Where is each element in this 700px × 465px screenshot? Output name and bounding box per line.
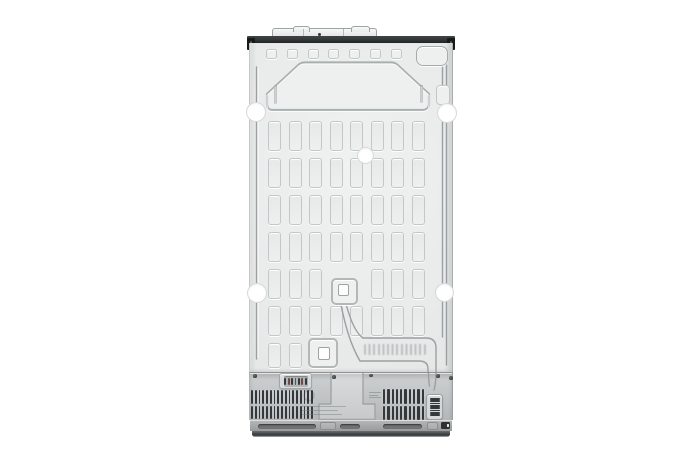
vent-slat bbox=[413, 389, 415, 404]
base-tab bbox=[427, 422, 438, 430]
top-emboss-square bbox=[308, 49, 319, 59]
plate-slat bbox=[284, 378, 286, 385]
label-line bbox=[302, 410, 338, 411]
vent-slat bbox=[274, 390, 276, 404]
refrigerator-back-view bbox=[247, 27, 455, 438]
cabinet-top-edge bbox=[247, 36, 455, 43]
vent-slat bbox=[413, 406, 415, 421]
screw-icon bbox=[332, 375, 336, 379]
label-line bbox=[369, 392, 381, 393]
hinge-bump-left bbox=[293, 26, 310, 32]
machine-compartment-cover bbox=[249, 372, 453, 420]
square-cutout bbox=[318, 347, 330, 360]
grille-slat bbox=[430, 400, 440, 402]
molded-label-small-illegible bbox=[369, 392, 381, 398]
drain-grille bbox=[426, 394, 443, 420]
emboss-square-lower bbox=[308, 338, 338, 368]
vent-slat bbox=[296, 390, 298, 404]
vent-slat bbox=[274, 406, 276, 420]
vent-slat bbox=[307, 390, 309, 404]
emboss-square-upper bbox=[331, 278, 358, 305]
grille-slat bbox=[430, 403, 440, 405]
vent-slat bbox=[251, 406, 253, 420]
grille-slat bbox=[430, 398, 440, 400]
molded-label-text-illegible bbox=[302, 406, 346, 415]
product-photo-canvas bbox=[0, 0, 700, 465]
top-emboss-square bbox=[349, 49, 360, 59]
label-line bbox=[369, 395, 378, 396]
vent-slat bbox=[400, 406, 402, 421]
vent-slat bbox=[304, 390, 306, 404]
top-emboss-square bbox=[328, 49, 339, 59]
vent-slat bbox=[383, 406, 385, 421]
side-emboss-square bbox=[436, 85, 450, 105]
vent-slat-row bbox=[383, 389, 424, 404]
vent-slat-row bbox=[251, 390, 313, 404]
vent-slat bbox=[409, 406, 411, 421]
tube-channel-bottom bbox=[360, 361, 428, 372]
vent-slat bbox=[255, 390, 257, 404]
vent-slat bbox=[270, 390, 272, 404]
base-slot bbox=[340, 424, 360, 429]
plate-slat bbox=[288, 378, 290, 385]
vent-slat bbox=[262, 406, 264, 420]
vent-slat bbox=[262, 390, 264, 404]
vent-slat bbox=[285, 406, 287, 420]
top-emboss-square bbox=[391, 49, 402, 59]
vent-slat bbox=[300, 390, 302, 404]
drain-grille-slats bbox=[430, 398, 440, 416]
vent-slat bbox=[387, 406, 389, 421]
screw-icon bbox=[436, 374, 440, 378]
grille-slat bbox=[430, 412, 440, 414]
grille-slat bbox=[430, 414, 440, 416]
label-line bbox=[302, 414, 342, 415]
vent-slat bbox=[255, 406, 257, 420]
top-emboss-row bbox=[266, 49, 402, 59]
vent-slat bbox=[417, 406, 419, 421]
top-emboss-square bbox=[287, 49, 298, 59]
plate-slat bbox=[298, 378, 300, 385]
vent-slat bbox=[259, 390, 261, 404]
vent-slat bbox=[409, 389, 411, 404]
vent-slat bbox=[392, 406, 394, 421]
base-tab bbox=[320, 422, 336, 430]
vent-slat bbox=[417, 389, 419, 404]
power-cord-connector bbox=[441, 422, 450, 429]
vent-slat bbox=[396, 389, 398, 404]
vent-slat bbox=[277, 406, 279, 420]
vent-slat bbox=[311, 390, 313, 404]
base-grille-strip bbox=[250, 420, 452, 431]
label-line bbox=[302, 406, 346, 407]
vent-slat bbox=[404, 406, 406, 421]
plate-slat bbox=[301, 378, 303, 385]
label-line bbox=[369, 397, 381, 398]
back-panel bbox=[249, 43, 453, 372]
vent-slat bbox=[289, 406, 291, 420]
capillary-tube bbox=[341, 305, 360, 361]
top-emboss-square bbox=[370, 49, 381, 59]
vent-slat bbox=[383, 389, 385, 404]
top-emboss-square bbox=[266, 49, 277, 59]
vent-slat bbox=[251, 390, 253, 404]
hinge-bump-right bbox=[351, 26, 370, 32]
vent-slat bbox=[292, 406, 294, 420]
vent-slat bbox=[289, 390, 291, 404]
vent-slat bbox=[404, 389, 406, 404]
plate-slat bbox=[291, 378, 293, 385]
vent-slat bbox=[266, 390, 268, 404]
vent-slat bbox=[387, 389, 389, 404]
vent-slat-row bbox=[383, 406, 424, 421]
emboss-slot bbox=[420, 85, 423, 103]
vent-slat bbox=[292, 390, 294, 404]
top-right-emboss bbox=[416, 46, 448, 66]
stamped-code-illegible bbox=[364, 344, 426, 355]
square-cutout bbox=[338, 284, 349, 296]
vent-slat bbox=[270, 406, 272, 420]
screw-icon bbox=[449, 376, 453, 380]
plate-slots bbox=[284, 376, 308, 387]
small-vent-plate bbox=[279, 373, 312, 389]
base-slot bbox=[383, 424, 422, 429]
base-plinth bbox=[250, 420, 452, 438]
vent-slat bbox=[285, 390, 287, 404]
vent-slat bbox=[281, 406, 283, 420]
base-shadow-edge bbox=[252, 431, 450, 437]
vent-slat bbox=[422, 406, 424, 421]
emboss-slot bbox=[274, 85, 277, 104]
plate-slat bbox=[295, 378, 297, 385]
vent-slat bbox=[277, 390, 279, 404]
grille-slat bbox=[430, 410, 440, 412]
vent-slat bbox=[400, 389, 402, 404]
vent-slat bbox=[392, 389, 394, 404]
vent-slat bbox=[281, 390, 283, 404]
plate-slat bbox=[305, 378, 307, 385]
vent-slat bbox=[296, 406, 298, 420]
screw-icon bbox=[369, 374, 373, 378]
screw-icon bbox=[253, 374, 257, 378]
vent-slat bbox=[422, 389, 424, 404]
panel-emboss-and-tubing bbox=[250, 43, 454, 372]
vent-grille-right bbox=[383, 389, 424, 420]
vent-slat bbox=[266, 406, 268, 420]
vent-slat bbox=[396, 406, 398, 421]
grille-slat bbox=[430, 407, 440, 409]
base-slot bbox=[258, 424, 316, 429]
grille-slat bbox=[430, 405, 440, 407]
vent-slat bbox=[259, 406, 261, 420]
